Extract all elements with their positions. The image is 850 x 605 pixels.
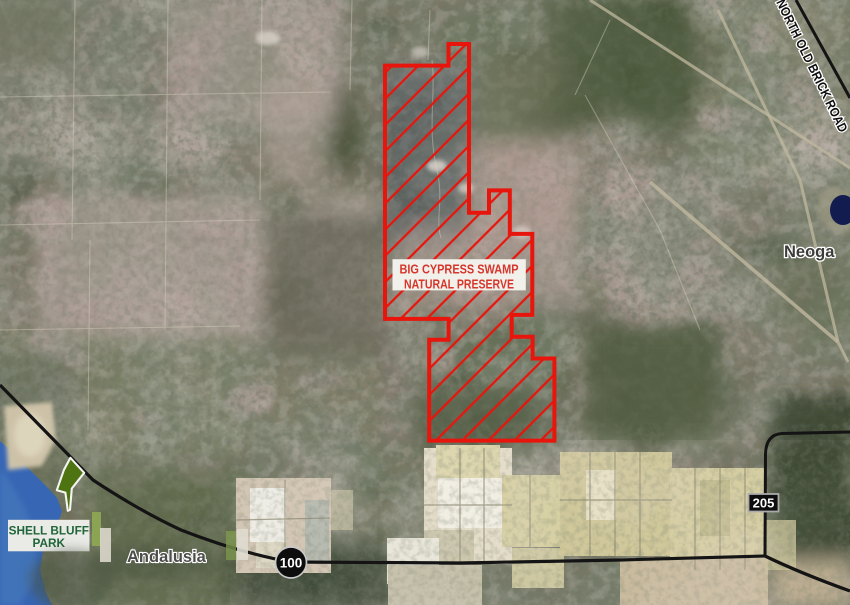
svg-text:100: 100 [280, 556, 303, 571]
svg-text:PARK: PARK [33, 536, 66, 550]
svg-text:BIG CYPRESS SWAMP: BIG CYPRESS SWAMP [400, 262, 519, 277]
svg-text:Andalusia: Andalusia [127, 548, 207, 566]
svg-text:Neoga: Neoga [784, 243, 835, 261]
svg-text:NATURAL PRESERVE: NATURAL PRESERVE [404, 277, 514, 292]
svg-text:205: 205 [753, 496, 775, 511]
